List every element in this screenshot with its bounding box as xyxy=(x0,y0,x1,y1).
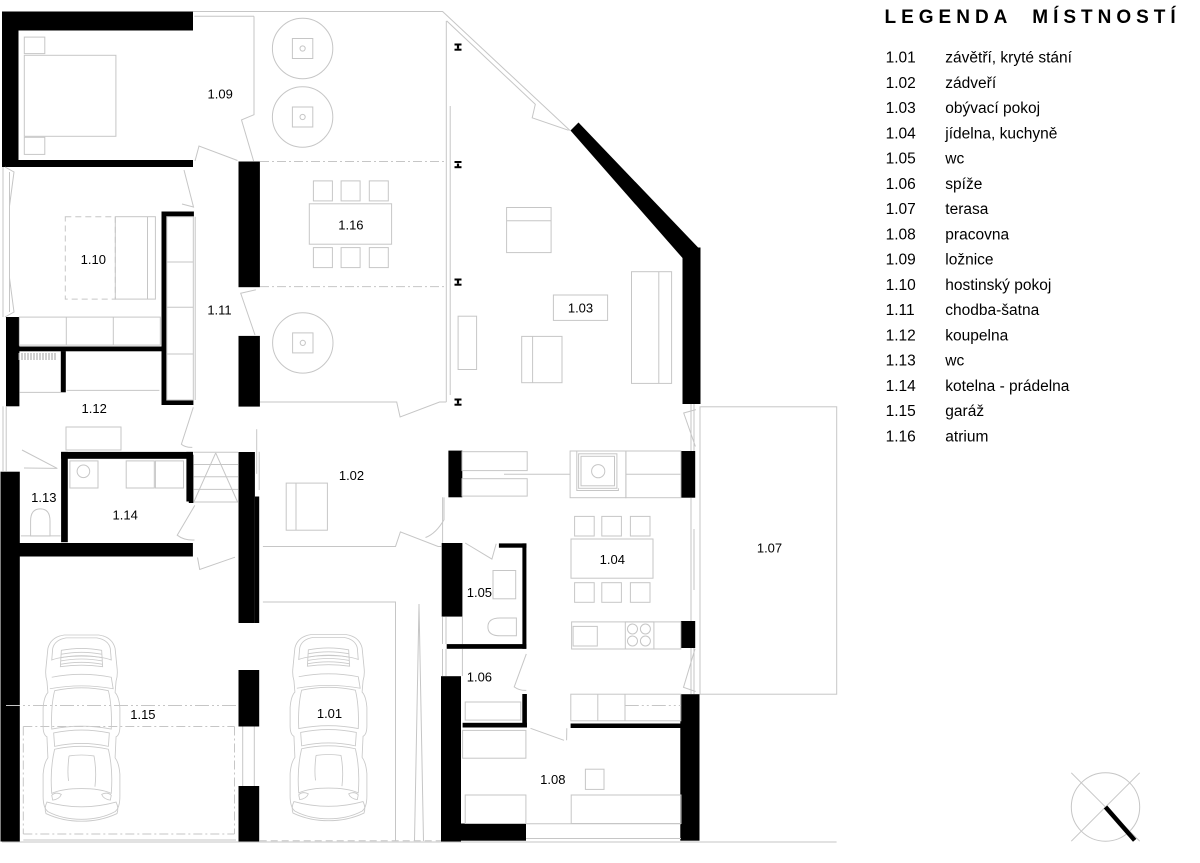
svg-text:1.04: 1.04 xyxy=(600,552,625,567)
svg-text:závětří, kryté stání: závětří, kryté stání xyxy=(945,50,1072,67)
svg-text:1.01: 1.01 xyxy=(317,706,342,721)
svg-text:1.02: 1.02 xyxy=(886,75,916,92)
svg-text:1.16: 1.16 xyxy=(338,218,363,233)
svg-text:1.04: 1.04 xyxy=(886,125,917,142)
svg-text:garáž: garáž xyxy=(945,403,984,420)
svg-text:1.10: 1.10 xyxy=(81,252,106,267)
svg-text:spíže: spíže xyxy=(945,176,982,193)
svg-text:LEGENDA MÍSTNOSTÍ: LEGENDA MÍSTNOSTÍ xyxy=(885,6,1181,28)
svg-text:zádveří: zádveří xyxy=(945,75,997,92)
svg-text:1.15: 1.15 xyxy=(130,707,155,722)
svg-text:wc: wc xyxy=(944,151,964,168)
svg-text:1.03: 1.03 xyxy=(886,100,916,117)
svg-text:1.11: 1.11 xyxy=(207,303,231,318)
svg-text:1.10: 1.10 xyxy=(886,277,917,294)
svg-text:1.07: 1.07 xyxy=(757,541,782,556)
svg-text:1.01: 1.01 xyxy=(886,50,916,67)
svg-text:atrium: atrium xyxy=(945,428,988,445)
svg-text:1.12: 1.12 xyxy=(82,401,107,416)
svg-text:1.07: 1.07 xyxy=(886,201,916,218)
svg-text:1.13: 1.13 xyxy=(886,353,916,370)
svg-text:1.09: 1.09 xyxy=(886,252,916,269)
svg-text:1.08: 1.08 xyxy=(886,226,916,243)
svg-text:1.08: 1.08 xyxy=(540,772,565,787)
svg-text:chodba-šatna: chodba-šatna xyxy=(945,302,1039,319)
svg-text:hostinský pokoj: hostinský pokoj xyxy=(945,277,1051,294)
svg-text:1.14: 1.14 xyxy=(886,378,917,395)
svg-text:koupelna: koupelna xyxy=(945,327,1008,344)
svg-text:1.03: 1.03 xyxy=(568,301,593,316)
svg-text:1.11: 1.11 xyxy=(886,302,915,319)
svg-text:terasa: terasa xyxy=(945,201,988,218)
svg-text:1.05: 1.05 xyxy=(467,585,492,600)
svg-text:1.16: 1.16 xyxy=(886,428,916,445)
svg-text:ložnice: ložnice xyxy=(945,252,993,269)
svg-text:1.05: 1.05 xyxy=(886,151,916,168)
svg-text:1.12: 1.12 xyxy=(886,327,916,344)
svg-text:jídelna, kuchyně: jídelna, kuchyně xyxy=(944,125,1057,142)
svg-text:pracovna: pracovna xyxy=(945,226,1009,243)
svg-text:1.02: 1.02 xyxy=(339,468,364,483)
svg-text:kotelna - prádelna: kotelna - prádelna xyxy=(945,378,1069,395)
svg-text:wc: wc xyxy=(944,353,964,370)
svg-text:1.06: 1.06 xyxy=(886,176,916,193)
svg-text:obývací pokoj: obývací pokoj xyxy=(945,100,1040,117)
svg-text:1.06: 1.06 xyxy=(467,670,492,685)
svg-text:1.13: 1.13 xyxy=(31,490,56,505)
svg-text:1.15: 1.15 xyxy=(886,403,916,420)
svg-text:1.09: 1.09 xyxy=(208,87,233,102)
svg-text:1.14: 1.14 xyxy=(113,508,138,523)
